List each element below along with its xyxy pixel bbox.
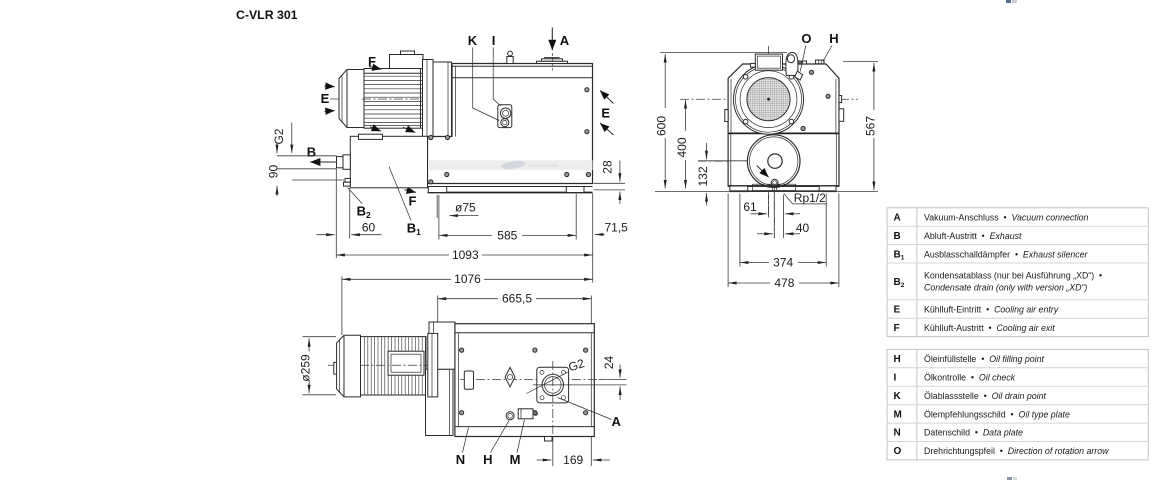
- svg-text:Ausblasschalldämpfer • Exhau: Ausblasschalldämpfer • Exhaust silencer: [924, 249, 1089, 259]
- svg-text:Condensate drain (only with ve: Condensate drain (only with version „XD“…: [924, 282, 1087, 292]
- svg-text:567: 567: [863, 116, 877, 136]
- svg-text:N: N: [456, 452, 465, 467]
- svg-text:A: A: [894, 213, 901, 224]
- svg-text:24: 24: [602, 356, 616, 370]
- svg-text:71,5: 71,5: [605, 221, 629, 235]
- svg-text:H: H: [829, 31, 838, 46]
- svg-text:K: K: [894, 391, 902, 402]
- svg-text:400: 400: [675, 137, 689, 157]
- svg-text:665,5: 665,5: [502, 292, 532, 306]
- svg-text:E: E: [894, 304, 901, 315]
- svg-text:60: 60: [362, 221, 376, 235]
- svg-text:40: 40: [796, 221, 810, 235]
- svg-text:Vakuum-Anschluss • Vacuum co: Vakuum-Anschluss • Vacuum connection: [924, 213, 1089, 223]
- svg-text:E: E: [321, 91, 330, 106]
- svg-text:28: 28: [601, 160, 615, 174]
- svg-text:F: F: [894, 323, 900, 334]
- svg-text:F: F: [409, 194, 417, 209]
- svg-text:Kühlluft-Eintritt • Cooling: Kühlluft-Eintritt • Cooling air entry: [924, 304, 1059, 314]
- svg-text:Abluft-Austritt • Exhaust: Abluft-Austritt • Exhaust: [924, 231, 1022, 241]
- svg-text:Drehrichtungspfeil • Directi: Drehrichtungspfeil • Direction of rotati…: [924, 446, 1109, 456]
- svg-text:I: I: [492, 33, 496, 48]
- svg-text:90: 90: [267, 165, 281, 179]
- svg-text:Öleinfüllstelle • Oil fillin: Öleinfüllstelle • Oil filling point: [924, 354, 1045, 364]
- svg-text:M: M: [510, 452, 521, 467]
- svg-text:G2: G2: [272, 128, 286, 144]
- svg-text:Ölablassstelle • Oil drain p: Ölablassstelle • Oil drain point: [924, 391, 1046, 401]
- svg-text:1093: 1093: [452, 248, 479, 262]
- svg-text:ø75: ø75: [455, 200, 476, 214]
- svg-text:M: M: [894, 409, 902, 420]
- svg-text:Datenschild • Data plate: Datenschild • Data plate: [924, 428, 1023, 438]
- svg-text:600: 600: [655, 116, 669, 136]
- svg-text:Ölkontrolle • Oil check: Ölkontrolle • Oil check: [924, 372, 1016, 382]
- svg-text:H: H: [894, 354, 901, 365]
- svg-text:B: B: [894, 231, 901, 242]
- svg-text:Rp1/2: Rp1/2: [794, 191, 826, 205]
- svg-text:K: K: [468, 33, 478, 48]
- svg-text:A: A: [612, 414, 622, 429]
- svg-text:ø259: ø259: [299, 354, 313, 382]
- svg-text:478: 478: [774, 276, 794, 290]
- svg-text:A: A: [560, 33, 570, 48]
- svg-text:585: 585: [497, 228, 517, 242]
- svg-text:374: 374: [773, 255, 793, 269]
- svg-text:O: O: [801, 31, 811, 46]
- svg-text:132: 132: [696, 166, 710, 186]
- svg-text:E: E: [601, 106, 610, 121]
- svg-text:Kondensatablass (nur bei Ausfü: Kondensatablass (nur bei Ausführung „XD“…: [924, 270, 1102, 280]
- svg-text:Ölempfehlungsschild • Oil ty: Ölempfehlungsschild • Oil type plate: [924, 409, 1070, 419]
- svg-text:Elmo Rietschle: Elmo Rietschle: [528, 163, 559, 168]
- svg-text:N: N: [894, 428, 901, 439]
- svg-text:61: 61: [743, 200, 757, 214]
- svg-text:C-VLR 301: C-VLR 301: [236, 8, 298, 22]
- svg-text:Kühlluft-Austritt • Cooling: Kühlluft-Austritt • Cooling air exit: [924, 323, 1055, 333]
- svg-text:B: B: [307, 145, 316, 160]
- svg-text:O: O: [894, 446, 902, 457]
- svg-text:169: 169: [563, 453, 583, 467]
- svg-text:H: H: [483, 452, 492, 467]
- svg-text:1076: 1076: [454, 272, 481, 286]
- svg-text:I: I: [894, 372, 897, 383]
